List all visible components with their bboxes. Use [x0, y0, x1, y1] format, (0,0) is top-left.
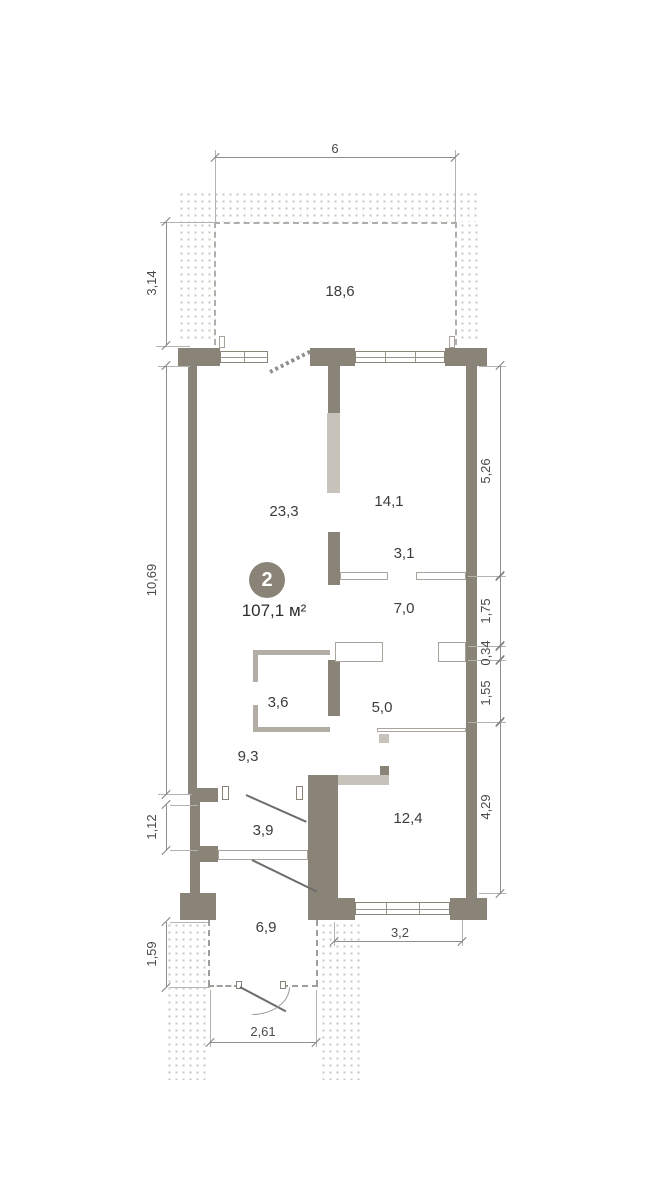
total-area-label: 107,1 м²	[234, 601, 314, 621]
kitchen-counter-post	[380, 766, 389, 775]
dimension-line-porch-width	[210, 1042, 316, 1043]
extension-line	[156, 346, 190, 347]
wall-left	[188, 366, 197, 794]
wall-top-middle-pier	[310, 348, 355, 366]
room-area-porch: 6,9	[244, 919, 288, 936]
extension-line	[215, 150, 216, 222]
window-mullion	[415, 352, 416, 362]
window-top-left	[220, 351, 268, 363]
dimension-label-porch-depth: 1,59	[144, 932, 160, 976]
partition-hall-right	[416, 572, 466, 580]
dimension-label-left-height: 10,69	[144, 558, 160, 602]
dimension-line-top	[215, 157, 455, 158]
dimension-line-terrace-depth	[166, 222, 167, 345]
window-top-right	[355, 351, 445, 363]
door-jamb	[296, 786, 303, 800]
wall-right	[466, 366, 477, 905]
extension-line	[160, 222, 215, 223]
dimension-line-right-upper-mid	[500, 576, 501, 646]
room-area-living: 23,3	[262, 503, 306, 520]
extension-line	[170, 922, 208, 923]
wall-bottom-right-corner	[450, 898, 487, 920]
window-mullion	[419, 903, 420, 914]
greenery-hatch-left	[178, 222, 215, 340]
wall-middle-upper	[328, 366, 340, 413]
dimension-label-right-wall: 0,34	[478, 631, 494, 675]
dimension-line-right-top	[500, 366, 501, 576]
room-area-kitchen-dining: 14,1	[367, 493, 411, 510]
greenery-hatch-top	[178, 191, 480, 222]
window-mullion	[244, 352, 245, 362]
extension-line	[455, 150, 456, 222]
window-mullion	[386, 903, 387, 914]
dimension-line-right-lower-mid	[500, 660, 501, 722]
wardrobe-wall-left-upper	[253, 650, 258, 682]
greenery-hatch-porch-right	[320, 922, 362, 1080]
extension-line	[170, 805, 198, 806]
room-area-entry: 3,9	[241, 822, 285, 839]
extension-line	[170, 987, 210, 988]
apartment-number-badge: 2	[249, 562, 285, 598]
dimension-label-right-upper-mid: 1,75	[478, 589, 494, 633]
room-area-terrace: 18,6	[318, 283, 362, 300]
terrace-rail-post	[219, 336, 225, 348]
floor-plan: 18,6 6 3,14	[0, 0, 653, 1200]
wall-top-right-corner	[445, 348, 487, 366]
wall-middle-mid	[328, 532, 340, 585]
wall-top-left-pier	[178, 348, 220, 366]
extension-line	[479, 366, 506, 367]
wall-entry-pier-bottom	[197, 846, 218, 862]
terrace-door-leaf	[269, 349, 312, 373]
wall-entry-pier-top	[197, 788, 218, 802]
dimension-label-terrace-depth: 3,14	[144, 261, 160, 305]
door-jamb	[222, 786, 229, 800]
room-area-kitchen: 9,3	[226, 748, 270, 765]
greenery-hatch-porch-left	[166, 922, 208, 1080]
room-area-bedroom: 12,4	[386, 810, 430, 827]
wardrobe-wall-bottom	[253, 727, 330, 732]
dimension-label-right-lower-mid: 1,55	[478, 671, 494, 715]
dimension-label-porch-width: 2,61	[241, 1024, 285, 1040]
wall-middle-lower	[328, 660, 340, 716]
dimension-line-left-opening	[166, 805, 167, 850]
entry-threshold	[218, 850, 308, 860]
room-area-wardrobe: 3,6	[256, 694, 300, 711]
dimension-line-window-width	[334, 941, 462, 942]
dimension-label-right-bottom: 4,29	[478, 785, 494, 829]
terrace-rail-post	[449, 336, 455, 348]
partition-corridor-bedroom	[377, 728, 466, 732]
extension-line	[210, 990, 211, 1047]
window-mullion	[385, 352, 386, 362]
extension-line	[334, 922, 335, 946]
room-area-bathroom: 7,0	[382, 600, 426, 617]
partition-hall-left	[340, 572, 388, 580]
partition-bathroom-left	[335, 642, 383, 662]
window-bottom	[355, 902, 450, 915]
dimension-line-right-bottom	[500, 722, 501, 893]
partition-door-block	[379, 734, 389, 743]
porch-wall-left	[208, 920, 210, 986]
dimension-line-porch-depth	[166, 922, 167, 987]
extension-line	[170, 850, 198, 851]
dimension-label-right-top: 5,26	[478, 449, 494, 493]
extension-line	[462, 920, 463, 946]
wall-bottom-left-pier	[334, 898, 355, 920]
porch-wall-right	[316, 920, 318, 986]
room-area-corridor: 5,0	[360, 699, 404, 716]
wardrobe-wall-top	[253, 650, 330, 655]
dimension-label-window-width: 3,2	[378, 925, 422, 941]
dimension-line-left-height	[166, 366, 167, 794]
extension-line	[316, 990, 317, 1047]
extension-line	[479, 893, 506, 894]
dimension-label-top-width: 6	[313, 141, 357, 157]
dimension-label-left-opening: 1,12	[144, 805, 160, 849]
room-area-hall: 3,1	[382, 545, 426, 562]
ventilation-shaft	[327, 413, 340, 493]
wall-foot-left	[180, 893, 216, 920]
partition-bathroom-right	[438, 642, 466, 662]
